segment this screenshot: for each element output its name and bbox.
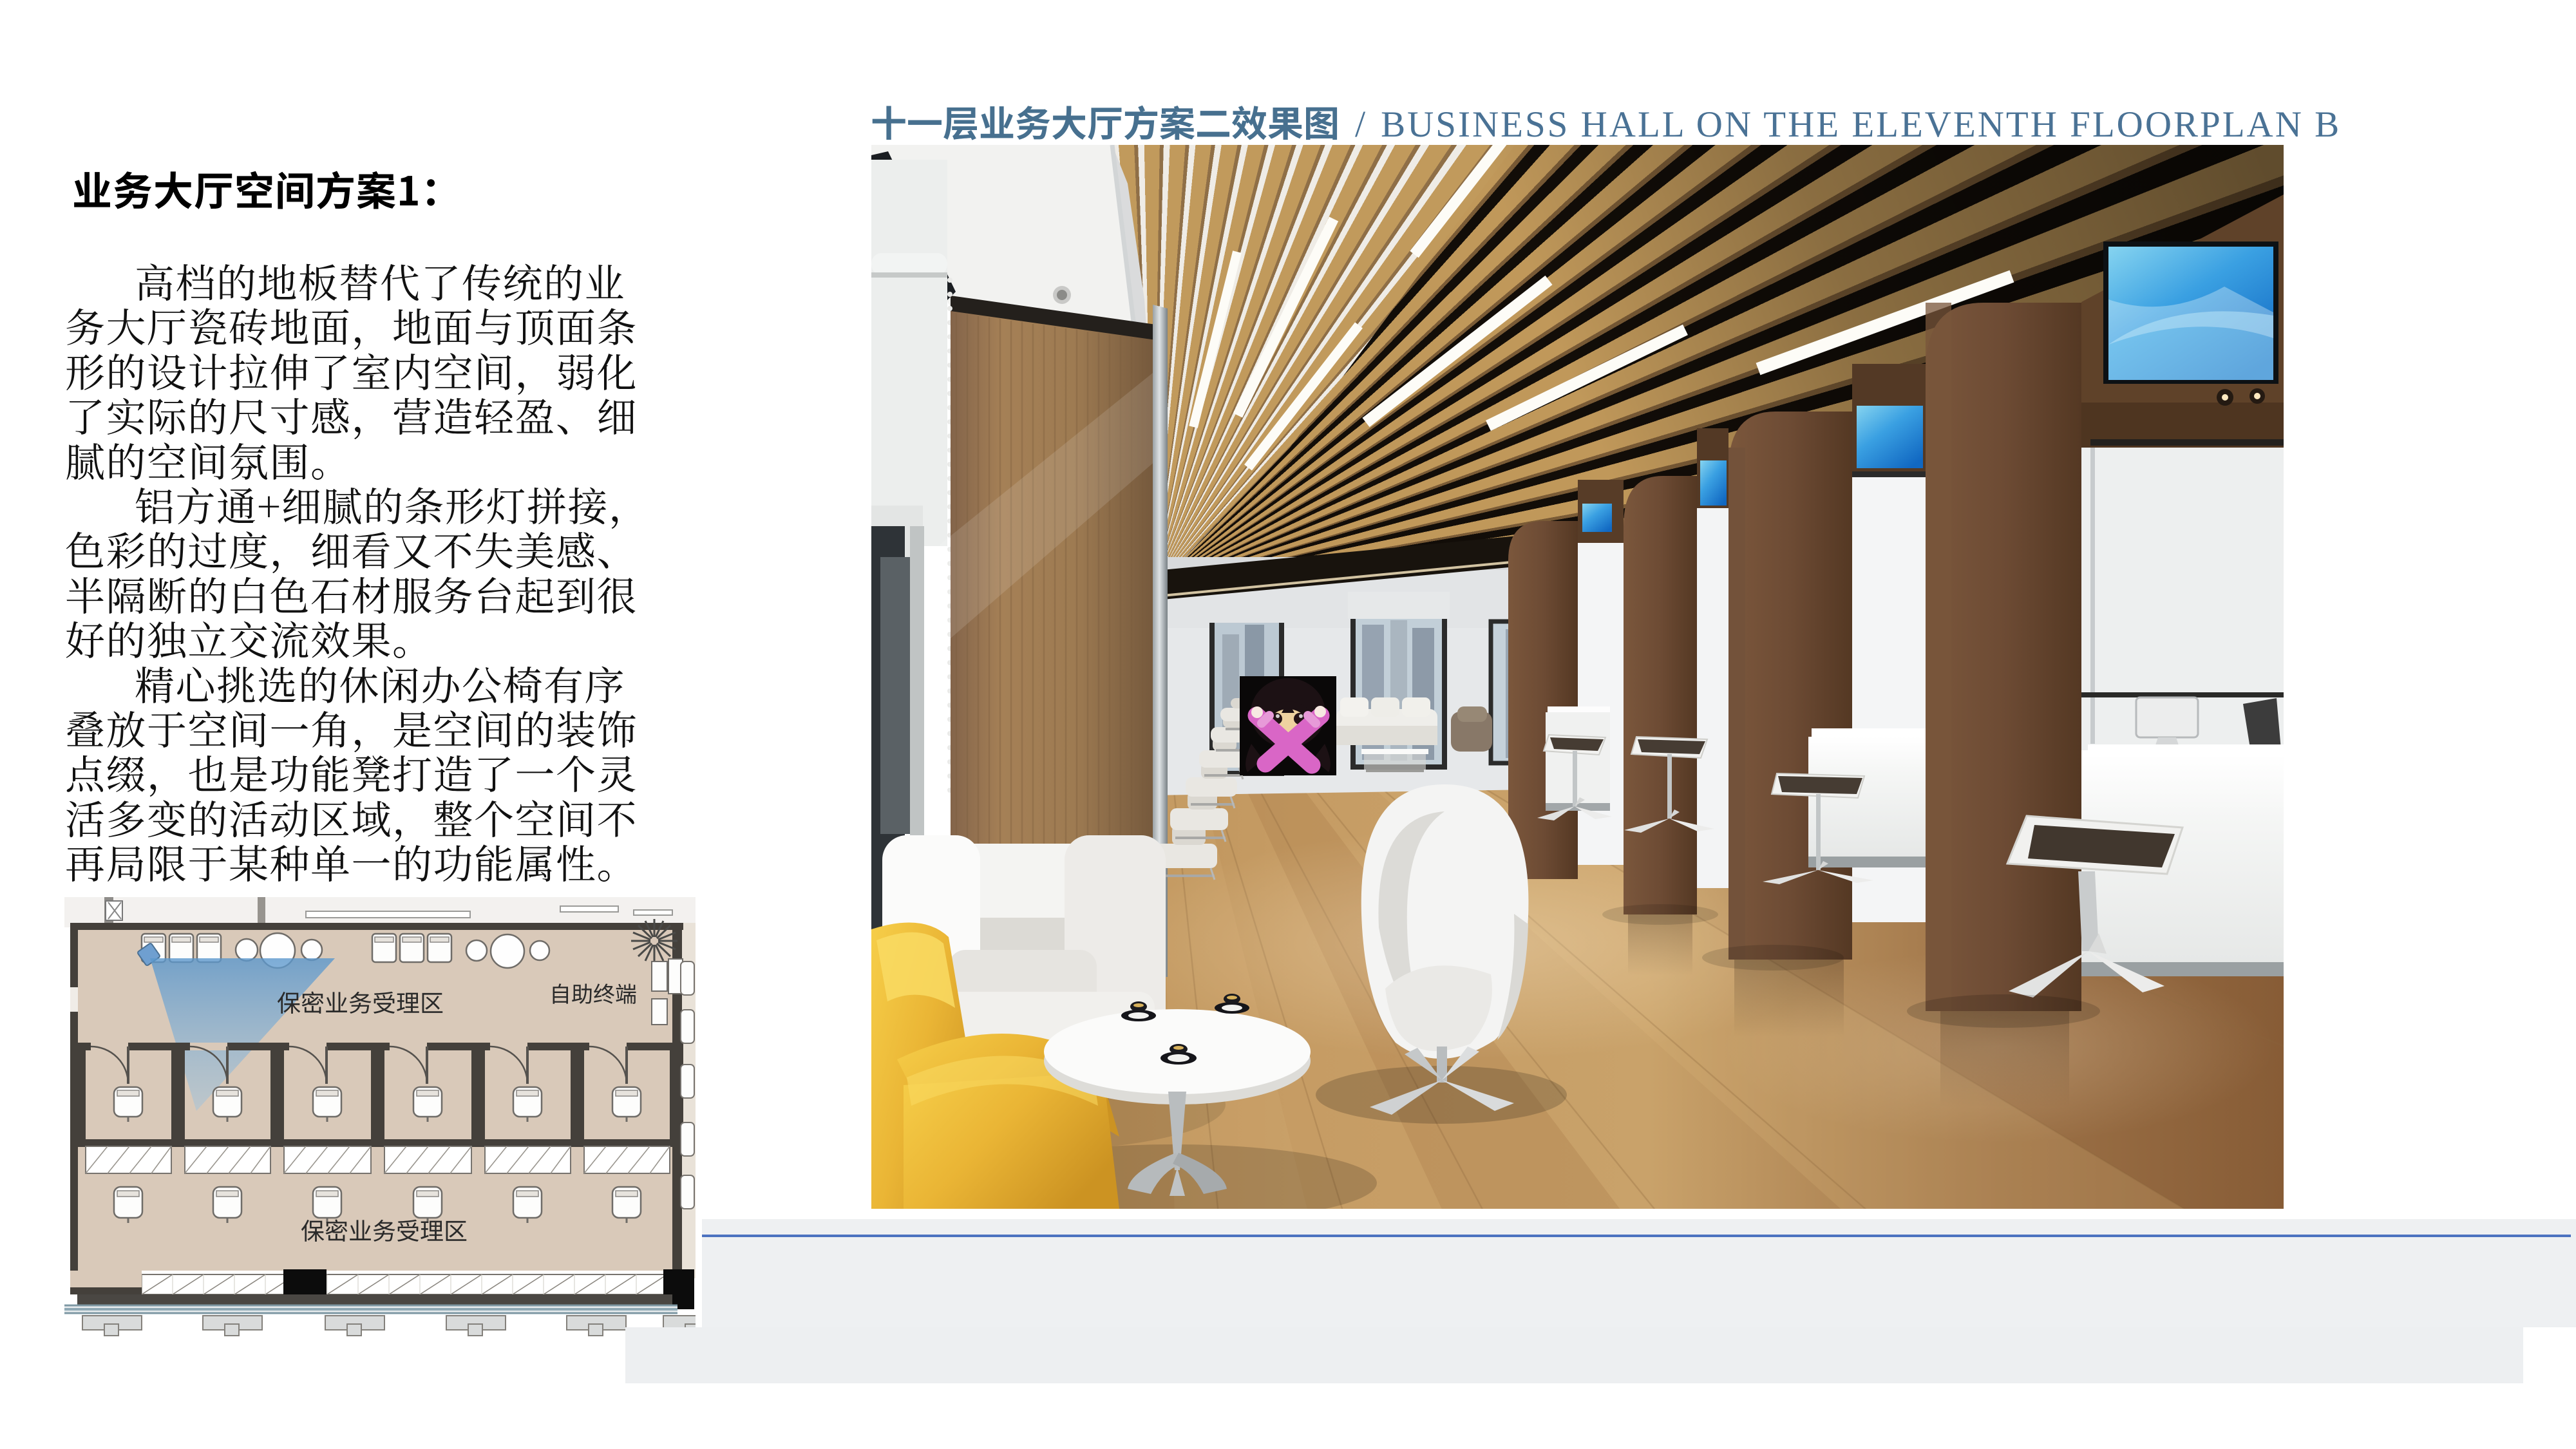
svg-text:保密业务受理区: 保密业务受理区 [277,984,444,1019]
svg-text:自助终端: 自助终端 [549,977,637,1009]
svg-text:保密业务受理区: 保密业务受理区 [301,1212,468,1247]
